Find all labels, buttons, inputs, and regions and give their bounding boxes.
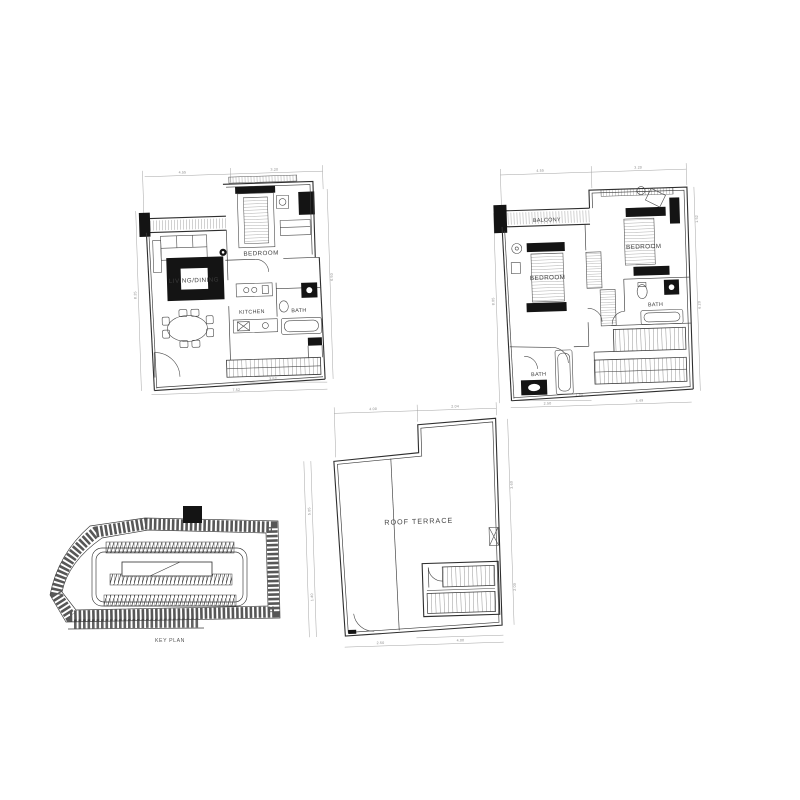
room-label-bedroom-left: BEDROOM — [530, 274, 566, 282]
dim-label: 2.50 — [377, 641, 385, 645]
bath-lower-fixtures — [520, 350, 573, 396]
room-label-bath: BATH — [291, 308, 306, 314]
room-label-bedroom-right: BEDROOM — [626, 243, 662, 251]
staircase — [593, 327, 687, 384]
dim-label: 2.04 — [451, 404, 459, 408]
closets — [586, 251, 616, 326]
dim-label: 4.55 — [178, 170, 186, 174]
dim-label: 4.00 — [456, 638, 464, 642]
dim-label: 4.00 — [369, 407, 377, 411]
dim-label: 8.05 — [491, 297, 495, 305]
dim-label: 3.60 — [510, 481, 514, 489]
key-plan-label: KEY PLAN — [155, 638, 185, 644]
dim-label: 6.20 — [697, 301, 701, 309]
plan-living-level: 4.55 3.20 8.25 6.50 7.52 3.52 — [130, 161, 337, 402]
dim-label: 1.40 — [310, 593, 314, 601]
courtyard-parking — [92, 542, 247, 606]
bed-right — [623, 185, 682, 276]
dim-label: 5.05 — [307, 507, 311, 515]
staircase — [226, 337, 323, 377]
dim-label: 2.00 — [513, 583, 517, 591]
dining-table — [162, 309, 214, 349]
room-label-kitchen: KITCHEN — [239, 309, 265, 316]
key-plan: KEY PLAN — [50, 500, 285, 648]
room-label-roof-terrace: ROOF TERRACE — [384, 516, 453, 527]
dim-label: 2.50 — [544, 401, 552, 405]
stair-enclosure — [422, 561, 500, 616]
room-label-bath-lower: BATH — [531, 372, 546, 378]
dim-label: 3.20 — [634, 166, 642, 170]
room-label-balcony: BALCONY — [533, 217, 561, 224]
dim-label: 6.50 — [330, 273, 334, 281]
plan-roof-terrace: 4.00 2.04 5.05 1.40 3.60 2.00 2.50 4.00 … — [299, 399, 522, 658]
dim-label: 4.55 — [536, 169, 544, 173]
dim-label: 1.52 — [695, 215, 699, 223]
room-label-bedroom: BEDROOM — [243, 250, 279, 258]
architectural-drawing-sheet: 4.55 3.20 8.25 6.50 7.52 3.52 — [0, 0, 800, 800]
dim-label: 3.20 — [270, 168, 278, 172]
dim-label: 4.49 — [636, 399, 644, 403]
dim-label: 8.25 — [133, 291, 137, 299]
room-label-bath-upper: BATH — [648, 302, 663, 308]
dim-label: 7.52 — [232, 388, 240, 392]
highlighted-unit — [183, 506, 202, 523]
bed — [235, 185, 290, 248]
kitchen-counters — [232, 283, 278, 333]
wardrobe — [280, 220, 310, 236]
plan-bedroom-level: 4.55 3.20 8.05 1.52 6.20 2.50 4.49 1.52 — [488, 159, 706, 415]
